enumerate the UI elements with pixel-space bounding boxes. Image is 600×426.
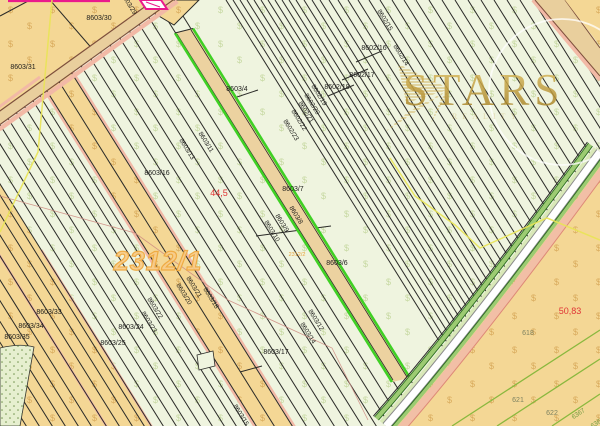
cadastral-map-svg: $ $ $ $ [0, 0, 600, 426]
cadastral-map: $ $ $ $ [0, 0, 600, 426]
